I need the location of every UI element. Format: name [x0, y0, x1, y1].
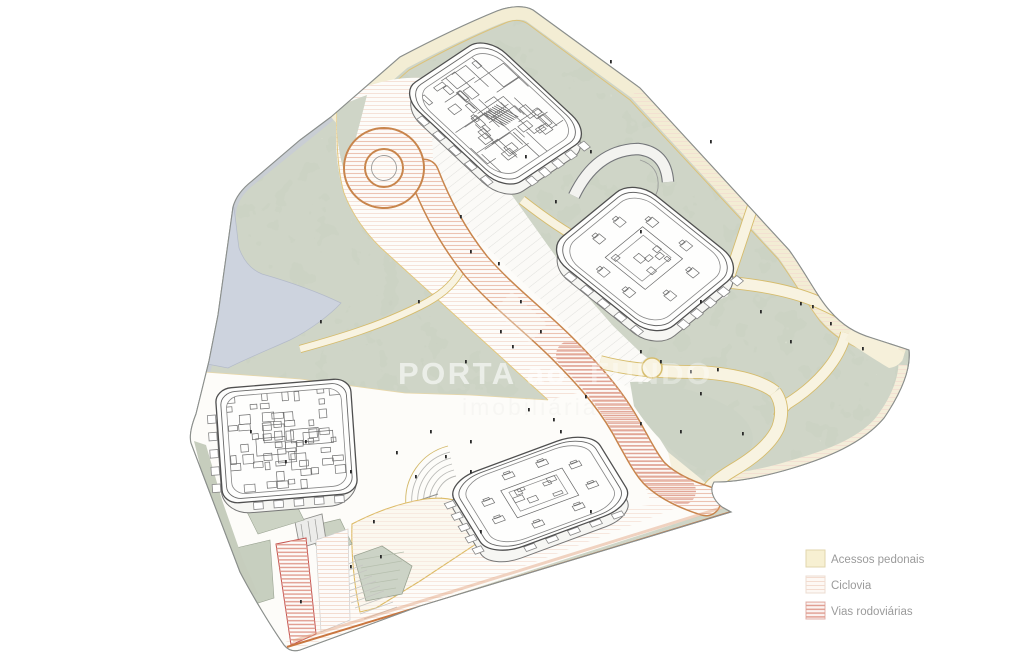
svg-text:FUNDO: FUNDO	[590, 356, 713, 391]
svg-text:Ciclovia: Ciclovia	[831, 580, 872, 592]
svg-text:imobiliária: imobiliária	[462, 394, 599, 420]
svg-text:Vias rodoviárias: Vias rodoviárias	[831, 606, 913, 618]
svg-text:Acessos pedonais: Acessos pedonais	[831, 554, 925, 566]
svg-text:PORTA ao: PORTA ao	[398, 356, 568, 391]
